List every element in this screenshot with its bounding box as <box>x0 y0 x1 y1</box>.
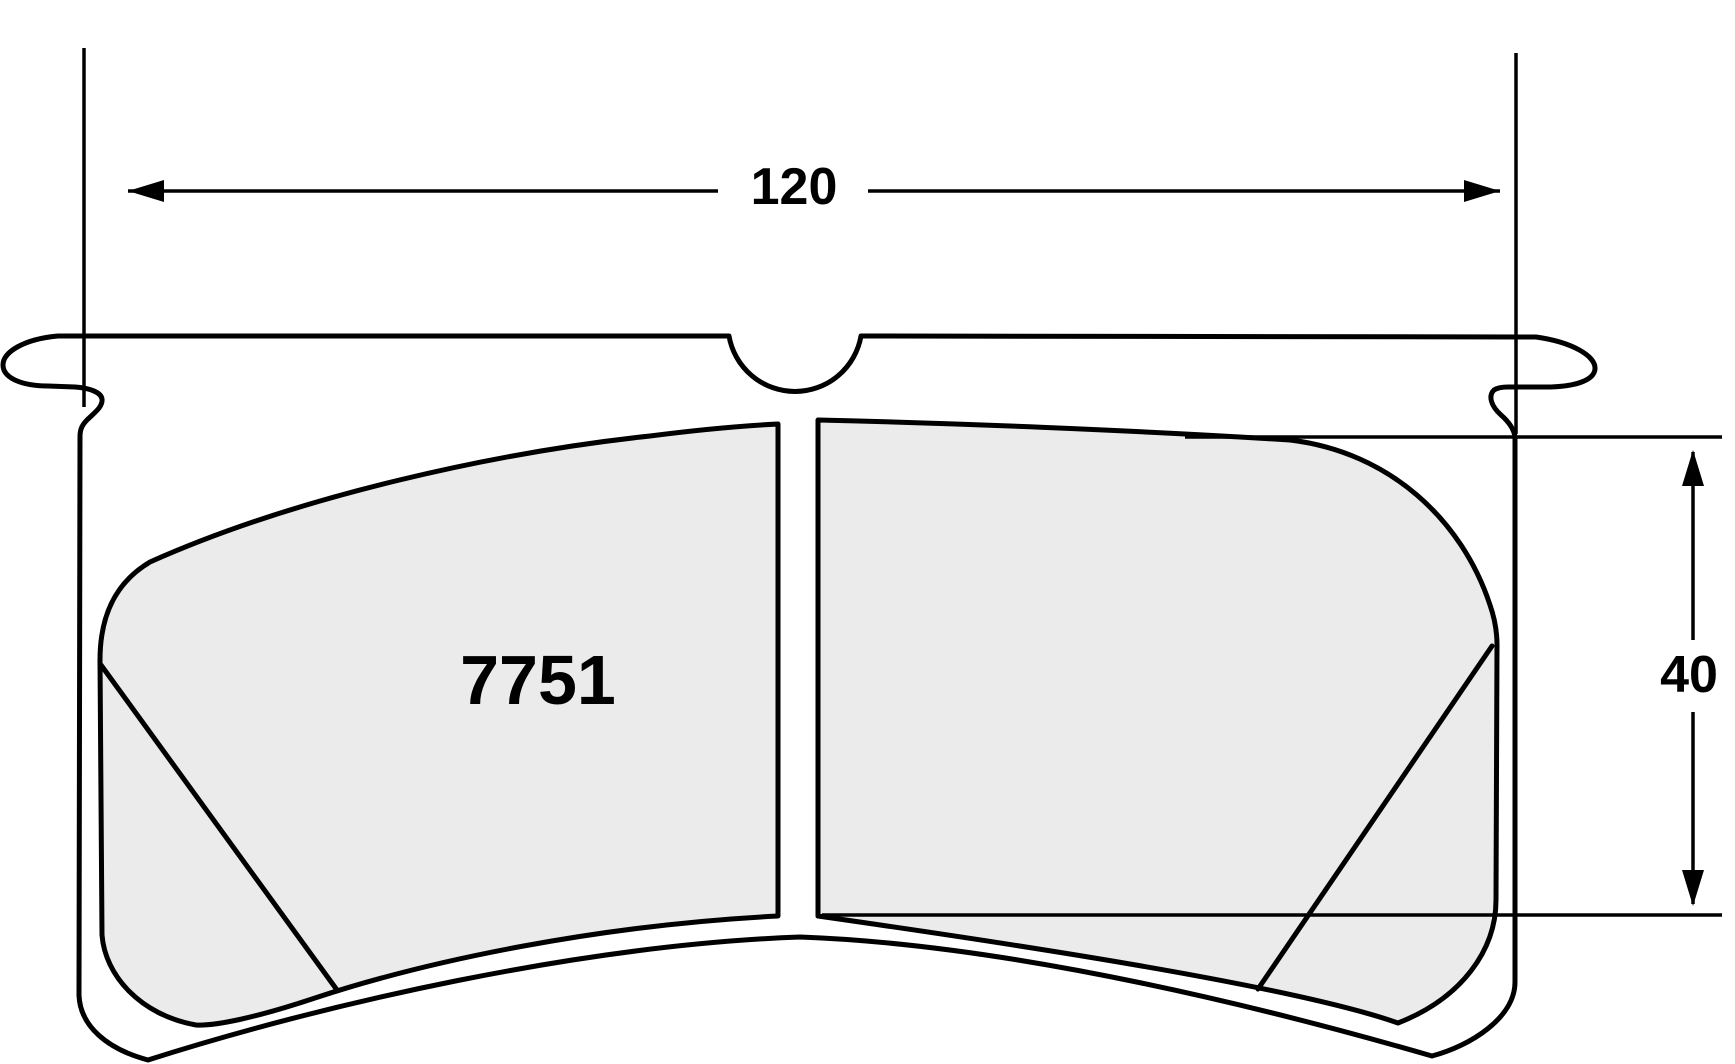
width-value-label: 120 <box>751 158 838 216</box>
height-value-label: 40 <box>1660 646 1718 704</box>
dim-arrow-down-icon <box>1682 870 1704 906</box>
dim-arrow-left-icon <box>128 180 164 202</box>
drawing-canvas: 120 40 7751 <box>0 0 1735 1064</box>
dim-arrow-right-icon <box>1464 180 1500 202</box>
friction-pad-right <box>818 420 1497 1023</box>
brake-pad-drawing: 120 40 7751 <box>0 0 1735 1064</box>
dim-arrow-up-icon <box>1682 450 1704 486</box>
part-number-label: 7751 <box>460 641 616 719</box>
